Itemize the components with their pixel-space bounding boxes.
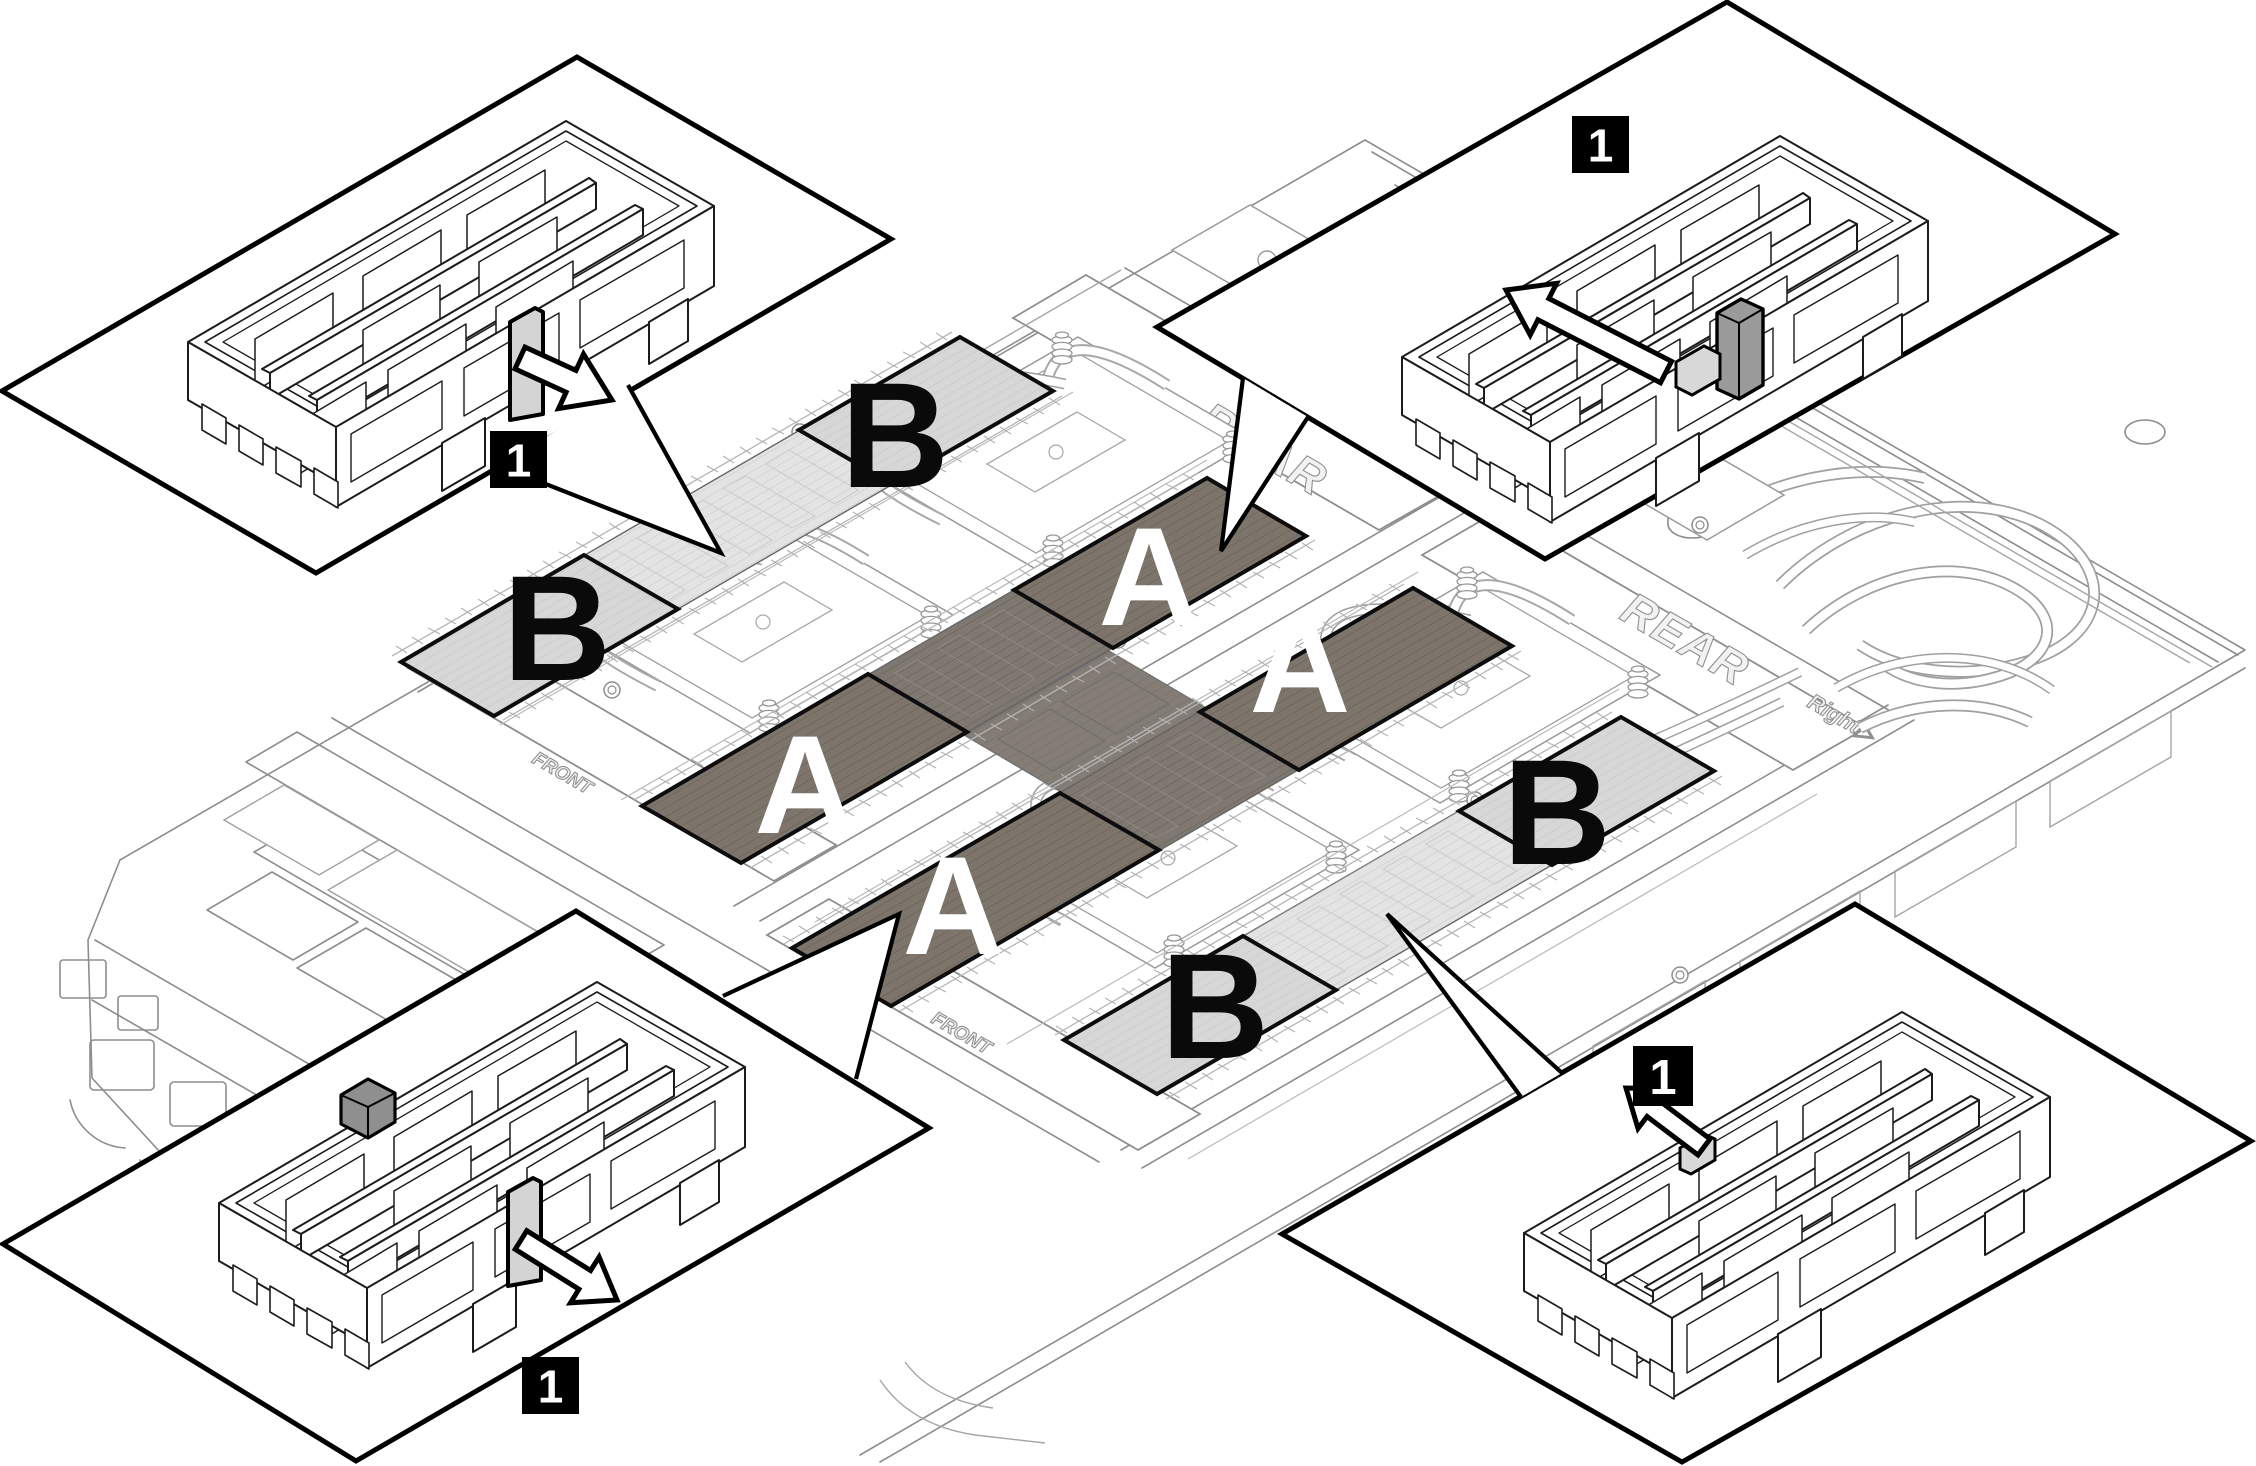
svg-text:A: A (902, 827, 1003, 984)
svg-text:B: B (841, 351, 949, 519)
svg-text:A: A (1249, 585, 1350, 742)
svg-text:B: B (1161, 922, 1269, 1090)
svg-text:A: A (1098, 498, 1199, 655)
svg-text:A: A (754, 706, 855, 863)
svg-text:B: B (503, 544, 611, 712)
svg-text:B: B (1503, 728, 1611, 896)
svg-text:1: 1 (538, 1361, 564, 1413)
svg-text:1: 1 (1649, 1051, 1676, 1105)
svg-text:1: 1 (1588, 120, 1614, 172)
svg-text:1: 1 (506, 435, 532, 487)
